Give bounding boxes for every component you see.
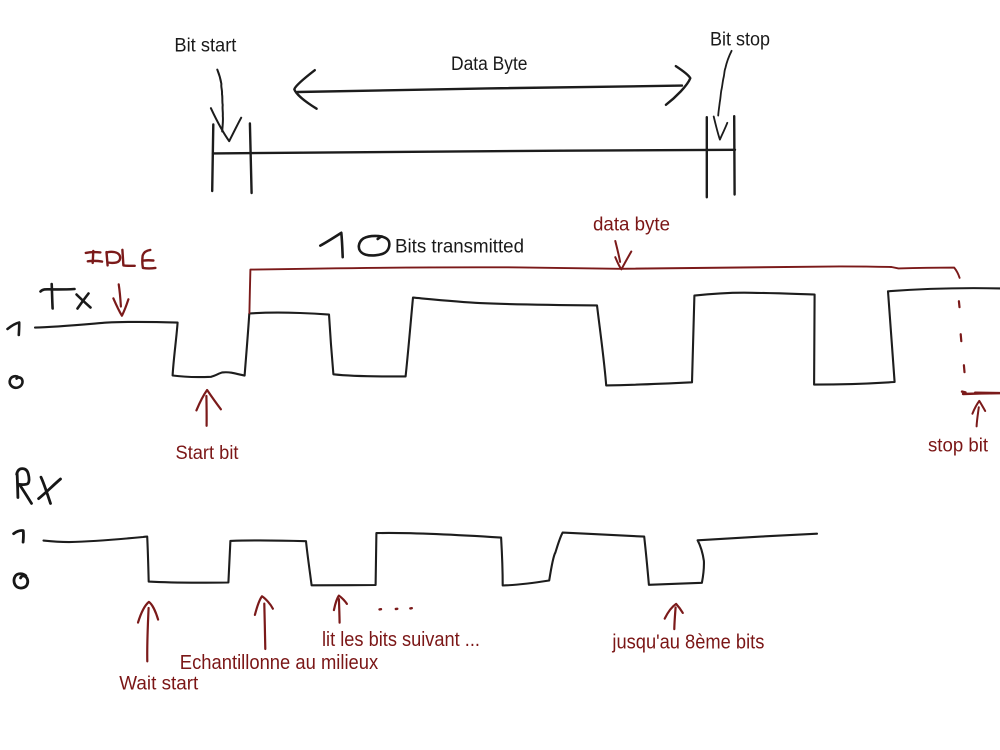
svg-text:Bits transmitted: Bits transmitted [395, 237, 524, 258]
svg-text:Wait start: Wait start [119, 673, 199, 694]
svg-text:lit les bits suivant ...: lit les bits suivant ... [322, 629, 480, 651]
svg-text:data byte: data byte [593, 215, 670, 236]
svg-text:Echantillonne au milieux: Echantillonne au milieux [180, 652, 378, 674]
svg-text:Bit stop: Bit stop [710, 30, 770, 51]
svg-text:jusqu'au 8ème bits: jusqu'au 8ème bits [611, 632, 764, 654]
svg-text:stop bit: stop bit [928, 436, 989, 457]
svg-text:Start bit: Start bit [176, 443, 240, 464]
svg-text:Bit start: Bit start [174, 35, 237, 56]
svg-text:Data Byte: Data Byte [451, 54, 528, 75]
